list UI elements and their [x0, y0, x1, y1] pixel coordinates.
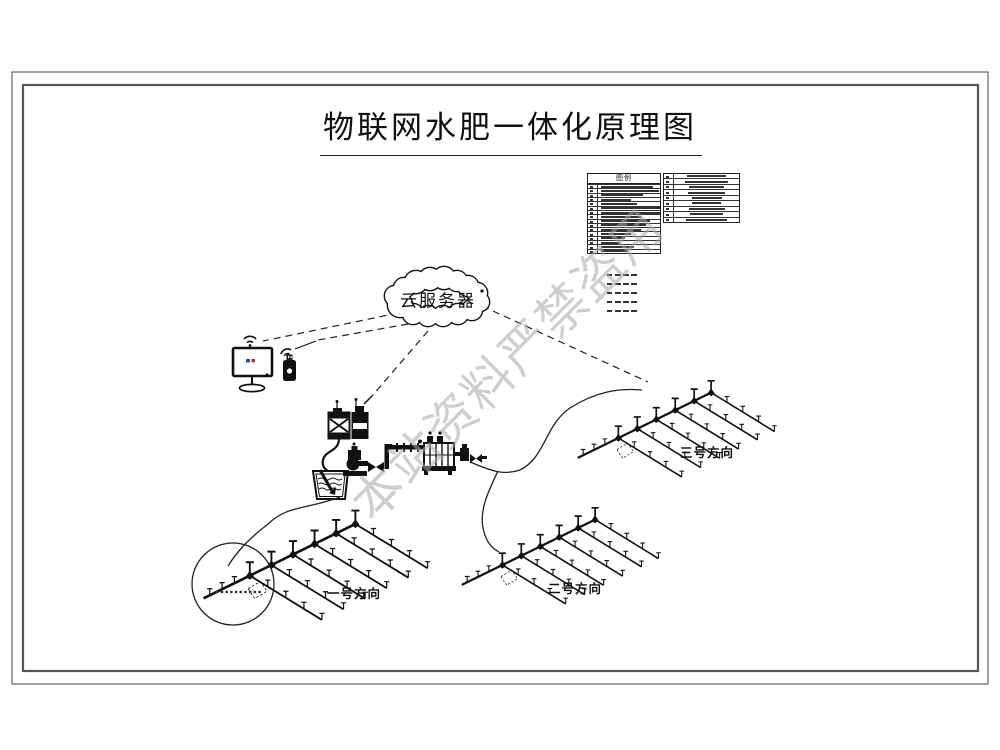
- cloud-dot: [480, 289, 483, 292]
- legend-row-number: [588, 202, 598, 205]
- page-title: 物联网水肥一体化原理图: [323, 102, 697, 147]
- legend-row-number: [664, 201, 674, 205]
- legend-row-number: [664, 185, 674, 189]
- wifi-icon: [244, 336, 256, 339]
- legend-row-number: [664, 212, 674, 216]
- link-cloud-to-phone: [318, 324, 408, 340]
- legend-row-text: [690, 213, 723, 215]
- legend-row-number: [588, 198, 598, 201]
- legend-row-number: [664, 179, 674, 183]
- legend-row-text: [692, 197, 722, 199]
- link-cloud-to-controller: [372, 331, 428, 396]
- cloud-server-label: 云服务器: [400, 287, 476, 312]
- suction-pipe: [323, 439, 339, 474]
- legend-row-number: [664, 190, 674, 194]
- field1-label: 一号方向: [327, 583, 381, 602]
- legend-row-number: [664, 207, 674, 211]
- schematic-page: 物联网水肥一体化原理图 图例 云服务器 一号方向 二号方向 三号方向 本站资料严…: [0, 0, 1000, 750]
- title-underline: [320, 155, 702, 156]
- legend-row-number: [588, 207, 598, 210]
- monitor-icon: [233, 336, 272, 391]
- legend-row-number: [588, 211, 598, 214]
- field2-label: 二号方向: [548, 578, 602, 597]
- line-type-sample: [607, 306, 637, 315]
- legend-row-number: [664, 218, 674, 222]
- legend-row-number: [664, 174, 674, 178]
- legend-title: 图例: [588, 174, 660, 184]
- legend-row: [664, 217, 739, 222]
- link-cloud-to-monitor: [263, 313, 398, 341]
- legend-table-secondary: [663, 173, 740, 223]
- legend-row-number: [588, 185, 598, 188]
- field3-label: 三号方向: [680, 442, 734, 461]
- legend-row-text: [692, 202, 721, 204]
- pipe-to-field1: [228, 497, 340, 566]
- legend-row-text: [688, 192, 726, 194]
- legend-row-text: [689, 186, 724, 188]
- pipe-main: [470, 462, 520, 472]
- mobile-device-icon: [280, 341, 316, 381]
- irrigation-field-1: [204, 511, 431, 620]
- legend-row-number: [588, 189, 598, 192]
- legend-row-text: [687, 175, 726, 177]
- pipe-to-field3: [520, 390, 642, 470]
- legend-row-text: [685, 181, 729, 183]
- pipe-to-field2: [482, 471, 499, 552]
- legend-row-number: [588, 194, 598, 197]
- fertilizer-tank-a: [329, 408, 350, 439]
- legend-row-text: [689, 208, 725, 210]
- legend-row-text: [686, 219, 727, 221]
- fertilizer-tank-b: [352, 396, 373, 439]
- irrigation-field-3: [578, 381, 777, 477]
- legend-row-number: [664, 196, 674, 200]
